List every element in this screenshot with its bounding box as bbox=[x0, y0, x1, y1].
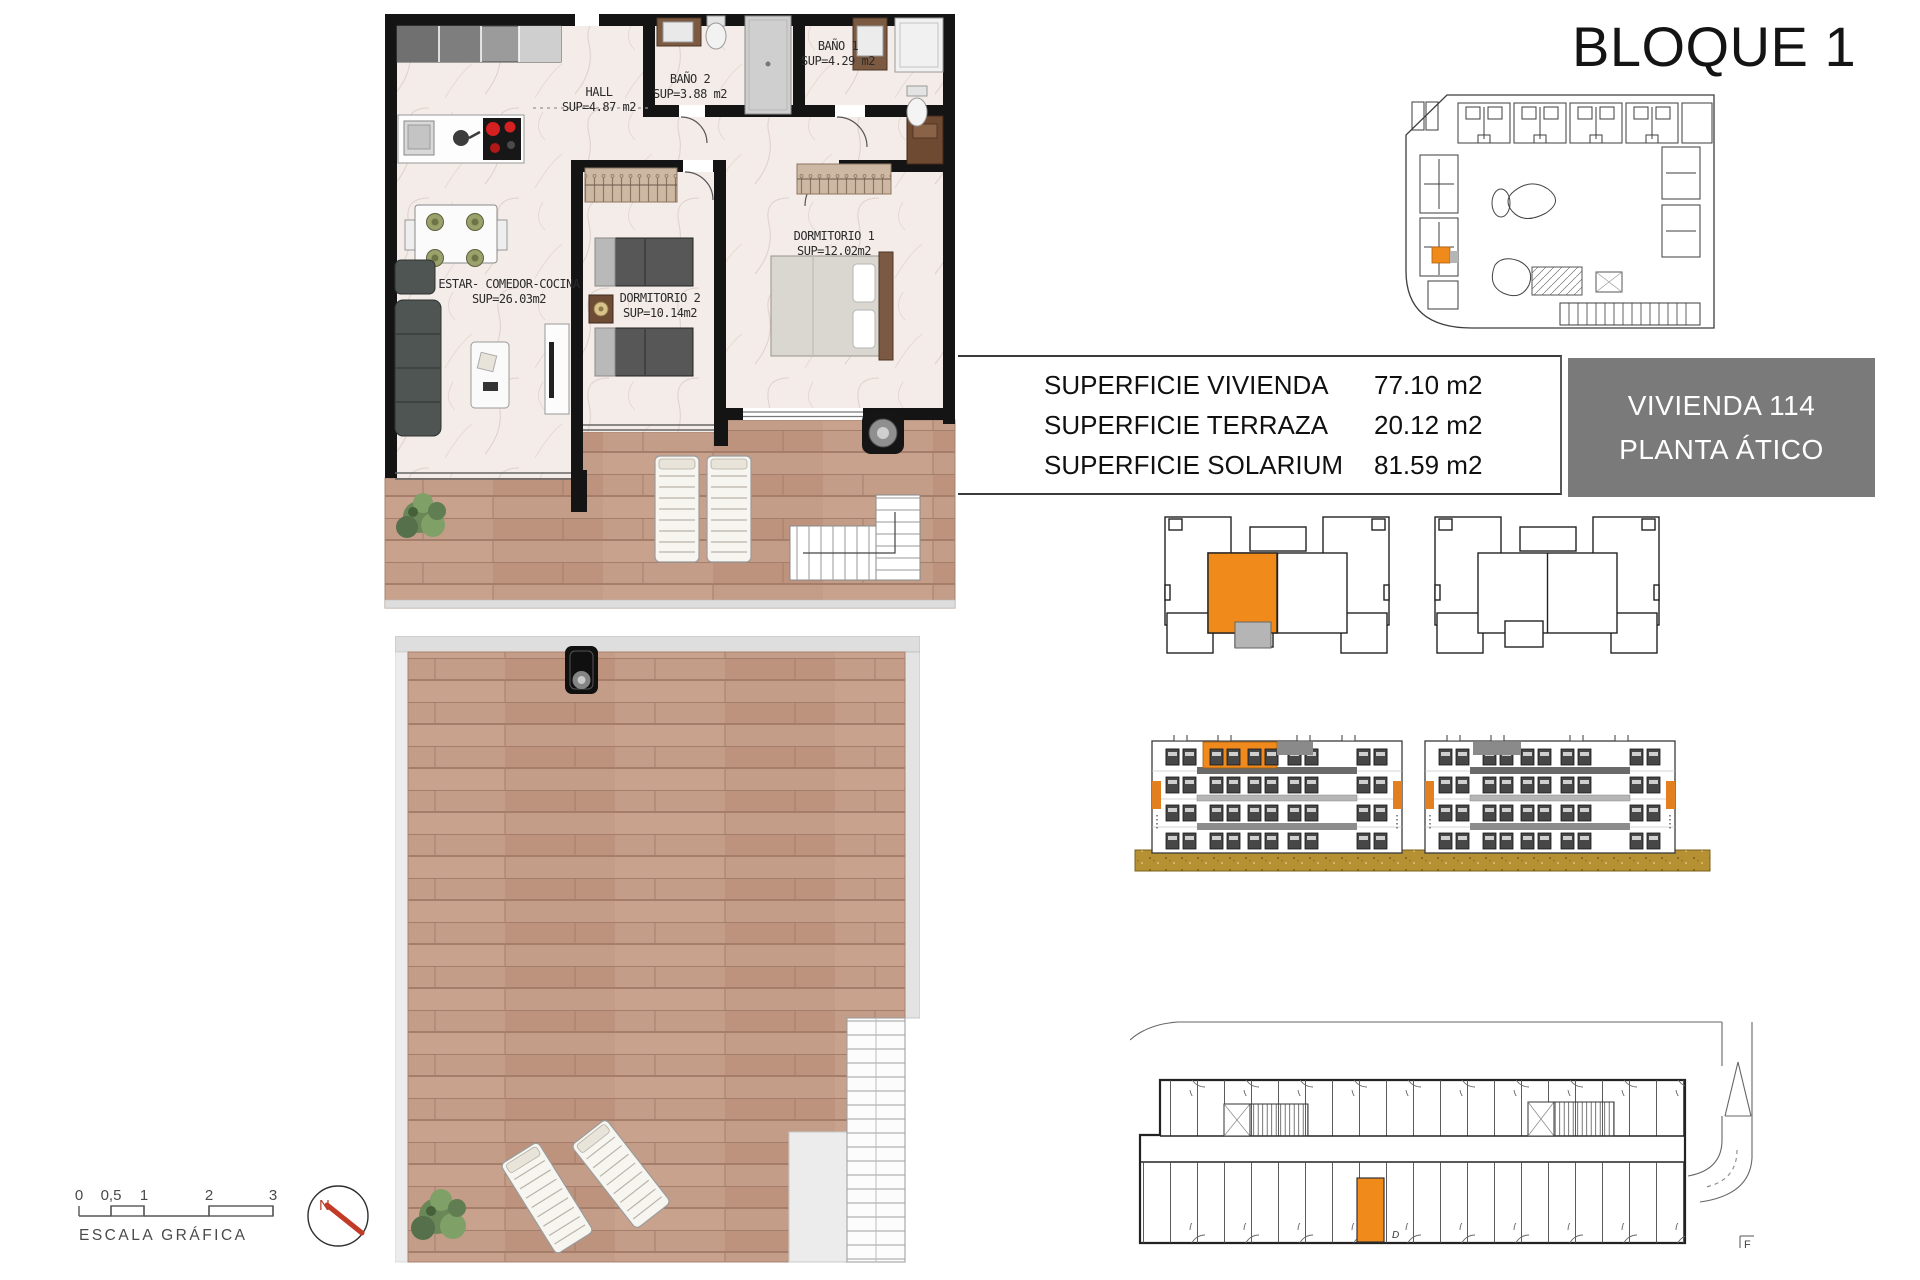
ramp-arrow bbox=[1725, 1062, 1751, 1116]
terrace-edge bbox=[385, 600, 955, 608]
key-plans bbox=[1160, 510, 1680, 660]
scale-tick-label: 2 bbox=[205, 1187, 213, 1204]
roof-gray-band bbox=[1277, 742, 1313, 755]
key-plan-highlight-terrace bbox=[1235, 622, 1271, 648]
site-pool bbox=[1492, 184, 1622, 296]
room-area: SUP=10.14m2 bbox=[620, 306, 701, 321]
room-name: DORMITORIO 2 bbox=[620, 291, 701, 306]
wardrobe-dorm2 bbox=[585, 168, 677, 202]
elevation-block1 bbox=[1152, 735, 1402, 853]
scale-caption: ESCALA GRÁFICA bbox=[79, 1227, 248, 1244]
room-name: BAÑO 1 bbox=[801, 39, 875, 54]
site-plan bbox=[1400, 85, 1730, 340]
room-name: ESTAR- COMEDOR-COCINA bbox=[438, 277, 579, 292]
scale-tick-label: 3 bbox=[269, 1187, 277, 1204]
terrace-lounger-1 bbox=[655, 456, 699, 562]
scale-tick-label: 0 bbox=[75, 1187, 83, 1204]
area-value: 77.10 m2 bbox=[1374, 370, 1482, 401]
room-label-estar: ESTAR- COMEDOR-COCINA SUP=26.03m2 bbox=[438, 277, 579, 307]
bed-dorm2-1 bbox=[595, 238, 693, 286]
section-letter: F bbox=[1744, 1239, 1751, 1251]
site-right-units bbox=[1662, 147, 1700, 257]
room-name: BAÑO 2 bbox=[653, 72, 727, 87]
nightstand-dorm2 bbox=[589, 295, 613, 323]
room-label-dorm2: DORMITORIO 2 SUP=10.14m2 bbox=[620, 291, 701, 321]
scale-bar: 0 0,5 1 2 3 ESCALA GRÁFICA bbox=[70, 1182, 320, 1252]
stair-core-1 bbox=[1224, 1104, 1308, 1136]
storage-letter: D bbox=[1392, 1230, 1399, 1241]
wardrobe-dorm1 bbox=[797, 164, 891, 194]
scale-numbers: 0 0,5 1 2 3 bbox=[75, 1187, 277, 1204]
unit-number: VIVIENDA 114 bbox=[1628, 390, 1816, 422]
room-label-bano1: BAÑO 1 SUP=4.29 m2 bbox=[801, 39, 875, 69]
chimney bbox=[565, 646, 598, 694]
room-area: SUP=4.87 m2 bbox=[562, 100, 636, 115]
kitchen-cabinets bbox=[397, 26, 561, 62]
key-plan-block2 bbox=[1435, 517, 1659, 653]
key-plan-highlight-unit bbox=[1208, 553, 1277, 633]
site-highlight-unit bbox=[1432, 247, 1450, 263]
parapet-right bbox=[905, 652, 920, 1018]
area-label: SUPERFICIE TERRAZA bbox=[1044, 410, 1374, 441]
scale-bar-graphic bbox=[79, 1206, 273, 1216]
parapet-left bbox=[395, 652, 408, 1262]
tv-unit bbox=[545, 324, 569, 414]
unit-floor: PLANTA ÁTICO bbox=[1619, 434, 1824, 466]
solarium-landing bbox=[789, 1132, 847, 1262]
plan-sheet: HALL SUP=4.87 m2 BAÑO 2 SUP=3.88 m2 BAÑO… bbox=[0, 0, 1920, 1280]
terrace-lounger-2 bbox=[707, 456, 751, 562]
page-title: BLOQUE 1 bbox=[1572, 14, 1856, 79]
stair-core-2 bbox=[1528, 1102, 1614, 1136]
site-bottom-comb bbox=[1560, 303, 1700, 325]
solarium-plan bbox=[395, 636, 920, 1276]
parapet-top bbox=[395, 636, 920, 652]
solarium-stairs bbox=[847, 1018, 905, 1262]
room-area: SUP=26.03m2 bbox=[438, 292, 579, 307]
room-label-bano2: BAÑO 2 SUP=3.88 m2 bbox=[653, 72, 727, 102]
room-name: DORMITORIO 1 bbox=[794, 229, 875, 244]
room-area: SUP=4.29 m2 bbox=[801, 54, 875, 69]
area-label: SUPERFICIE SOLARIUM bbox=[1044, 450, 1374, 481]
area-value: 20.12 m2 bbox=[1374, 410, 1482, 441]
room-label-hall: HALL SUP=4.87 m2 bbox=[562, 85, 636, 115]
kitchen-island bbox=[398, 115, 524, 163]
scale-tick-label: 1 bbox=[140, 1187, 148, 1204]
sofa bbox=[395, 260, 441, 436]
north-compass: N bbox=[300, 1182, 380, 1262]
area-value: 81.59 m2 bbox=[1374, 450, 1482, 481]
room-area: SUP=3.88 m2 bbox=[653, 87, 727, 102]
site-top-units bbox=[1458, 103, 1712, 143]
elevation-block2 bbox=[1425, 735, 1675, 853]
table-row: SUPERFICIE SOLARIUM 81.59 m2 bbox=[1044, 450, 1560, 481]
scale-tick-label: 0,5 bbox=[101, 1187, 122, 1204]
site-highlight-terrace bbox=[1450, 251, 1458, 263]
building-elevations bbox=[1130, 735, 1830, 885]
bed-dorm2-2 bbox=[595, 328, 693, 376]
basement-highlight-unit bbox=[1357, 1178, 1384, 1242]
table-row: SUPERFICIE VIVIENDA 77.10 m2 bbox=[1044, 370, 1560, 401]
room-area: SUP=12.02m2 bbox=[794, 244, 875, 259]
room-name: HALL bbox=[562, 85, 636, 100]
coffee-table bbox=[471, 342, 509, 408]
area-table: SUPERFICIE VIVIENDA 77.10 m2 SUPERFICIE … bbox=[958, 355, 1562, 495]
bed-dorm1 bbox=[771, 252, 893, 360]
unit-badge: VIVIENDA 114 PLANTA ÁTICO bbox=[1568, 358, 1875, 497]
dining-table bbox=[405, 205, 507, 267]
roof-gray-band bbox=[1473, 742, 1521, 755]
area-label: SUPERFICIE VIVIENDA bbox=[1044, 370, 1374, 401]
section-mark: F bbox=[1740, 1236, 1754, 1251]
table-row: SUPERFICIE TERRAZA 20.12 m2 bbox=[1044, 410, 1560, 441]
jacuzzi bbox=[862, 412, 904, 454]
room-label-dorm1: DORMITORIO 1 SUP=12.02m2 bbox=[794, 229, 875, 259]
basement-plan: D F bbox=[1130, 1010, 1830, 1270]
site-left-units bbox=[1420, 155, 1458, 309]
